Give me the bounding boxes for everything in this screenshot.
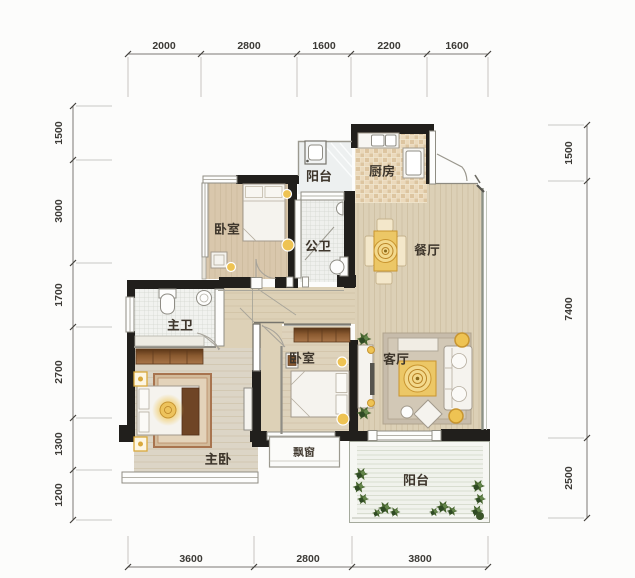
svg-text:7400: 7400 xyxy=(563,297,575,321)
svg-text:1700: 1700 xyxy=(53,283,65,307)
svg-text:1500: 1500 xyxy=(53,121,65,145)
svg-text:1600: 1600 xyxy=(312,40,336,52)
svg-text:2000: 2000 xyxy=(152,40,176,52)
svg-text:2700: 2700 xyxy=(53,360,65,384)
svg-text:2500: 2500 xyxy=(563,466,575,490)
svg-text:1200: 1200 xyxy=(53,483,65,507)
svg-text:1500: 1500 xyxy=(563,141,575,165)
svg-text:2800: 2800 xyxy=(237,40,261,52)
svg-text:3600: 3600 xyxy=(179,553,203,565)
svg-text:3800: 3800 xyxy=(408,553,432,565)
svg-text:2200: 2200 xyxy=(377,40,401,52)
svg-text:3000: 3000 xyxy=(53,199,65,223)
svg-text:1300: 1300 xyxy=(53,432,65,456)
svg-text:2800: 2800 xyxy=(296,553,320,565)
svg-text:1600: 1600 xyxy=(445,40,469,52)
